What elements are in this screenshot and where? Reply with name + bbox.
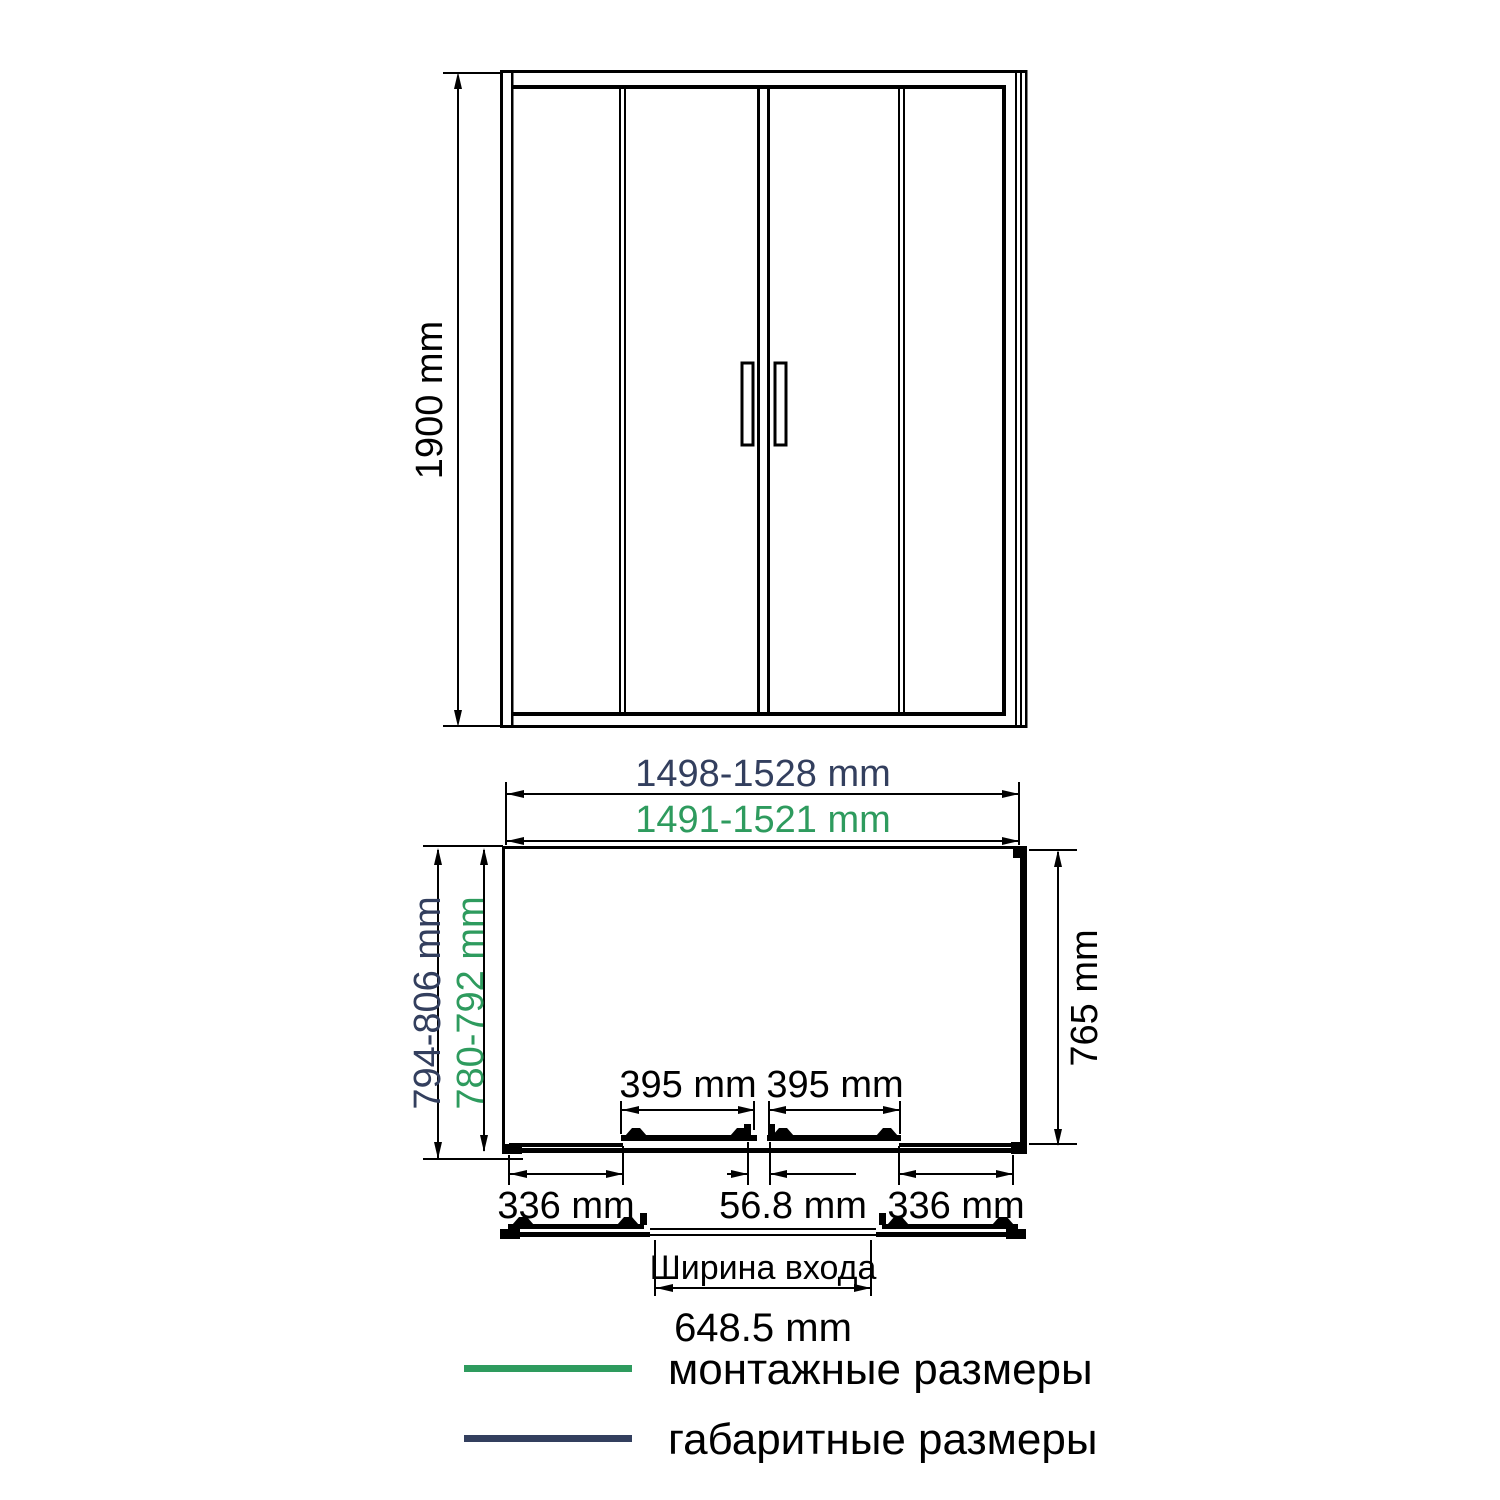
fixed-right-dim-line [899,1173,1013,1175]
extension-line [769,1142,771,1185]
center-overlap-label: 56.8 mm [719,1185,867,1227]
door-left-label: 395 mm [619,1064,756,1106]
extension-tick-bottom [443,725,517,727]
arrow-down [434,1142,442,1159]
legend-mounting-swatch [464,1365,632,1372]
entrance-rail-line-a [650,1228,876,1230]
overall-depth-label: 794-806 mm [407,896,449,1109]
legend-overall-swatch [464,1435,632,1442]
extension-line [508,1155,510,1185]
extension-tick-top [423,845,503,847]
open-door-schematic: Ширина входа 648.5 mm [500,1213,1026,1350]
frame-header-bar [513,85,1005,89]
entrance-rail-line-b [650,1234,876,1236]
entrance-dim-line [656,1287,871,1289]
arrow-left [507,790,524,798]
door-handle-left [742,363,753,445]
door-left-dim-line [622,1109,755,1111]
open-right-track [876,1232,1024,1237]
frame-right-profile-line1 [1015,70,1017,728]
bottom-dimensions: 336 mm 56.8 mm 336 mm [497,1142,1024,1227]
panel-divider-left-a [619,89,621,712]
arrow-right [731,1170,748,1178]
dimension-line [457,80,459,720]
extension-line [1012,1155,1014,1185]
arrow-right [606,1170,623,1178]
extension-line-right [1018,782,1020,845]
arrow-up [1054,850,1062,867]
entrance-width-label: 648.5 mm [674,1306,852,1350]
extension-line [622,1146,624,1185]
extension-line [898,1146,900,1185]
door-handle-right [775,363,786,445]
extension-line-left [505,782,507,845]
height-label: 1900 mm [409,321,451,479]
open-left-handle-stub [640,1213,647,1225]
panel-divider-right-a [898,89,900,712]
legend: монтажные размеры габаритные размеры [464,1345,1097,1464]
arrow-left [622,1106,639,1114]
roller [876,1128,898,1136]
arrow-right [738,1106,755,1114]
arrow-down [454,710,462,727]
open-right-handle-stub [879,1213,886,1225]
arrow-left [770,1170,787,1178]
extension-line [747,1142,749,1185]
legend-overall-label: габаритные размеры [668,1415,1097,1464]
sliding-door-dimensions: 395 mm 395 mm [619,1064,903,1134]
arrow-down [480,1135,488,1152]
plan-fixed-panel-left [509,1143,623,1147]
plan-view [502,846,1027,1154]
inner-depth-label: 765 mm [1064,929,1106,1066]
arrow-right [1002,837,1019,845]
plan-right-wall [1020,846,1027,1153]
door-right-label: 395 mm [766,1064,903,1106]
mounting-depth-label: 780-792 mm [450,896,492,1109]
frame-left-profile-outer [500,70,503,728]
frame-top-outer-line [500,70,1027,73]
arrow-up [434,848,442,865]
width-dimensions: 1498-1528 mm 1491-1521 mm [505,753,1020,845]
depth-dimensions: 794-806 mm 780-792 mm [407,845,523,1160]
panel-divider-left-b [624,89,626,712]
extension-tick-top [443,72,503,74]
arrow-left [507,837,524,845]
arrow-right [1002,790,1019,798]
plan-fixed-panel-right [899,1143,1020,1147]
extension-tick-bottom [1029,1143,1077,1145]
technical-drawing: 1900 mm 1498-1528 mm 1491-1521 mm [0,0,1500,1500]
center-stile-left [757,89,760,712]
roller [625,1128,647,1136]
overall-width-label: 1498-1528 mm [635,753,891,795]
mounting-width-label: 1491-1521 mm [635,799,891,841]
inner-depth-dimension: 765 mm [1029,849,1106,1146]
center-stile-right [767,89,770,712]
arrow-right [996,1170,1013,1178]
door-right-dim-line [769,1109,900,1111]
plan-left-wall [502,846,505,1153]
frame-right-profile-inner [1002,85,1006,716]
arrow-up [480,848,488,865]
entrance-label: Ширина входа [650,1249,877,1287]
arrow-right [883,1106,900,1114]
plan-track [502,1148,1026,1153]
plan-corner-block-top-right [1013,846,1027,858]
open-left-track [502,1232,650,1237]
roller [772,1128,794,1136]
frame-left-profile-inner [511,70,514,728]
arrow-up [454,72,462,89]
plan-back-wall [502,846,1026,849]
legend-mounting-label: монтажные размеры [668,1345,1093,1394]
arrow-left [510,1170,527,1178]
inner-depth-line [1057,852,1059,1144]
front-view [500,70,1028,728]
frame-right-profile-outer [1025,70,1028,728]
frame-right-profile-line2 [1020,70,1022,728]
plan-handle-stub-left [744,1124,751,1137]
arrow-left [899,1170,916,1178]
panel-divider-right-b [903,89,905,712]
frame-bottom-bar [513,712,1005,716]
extension-tick-top [1029,849,1077,851]
arrow-left [769,1106,786,1114]
frame-bottom-outer-line [500,725,1027,728]
